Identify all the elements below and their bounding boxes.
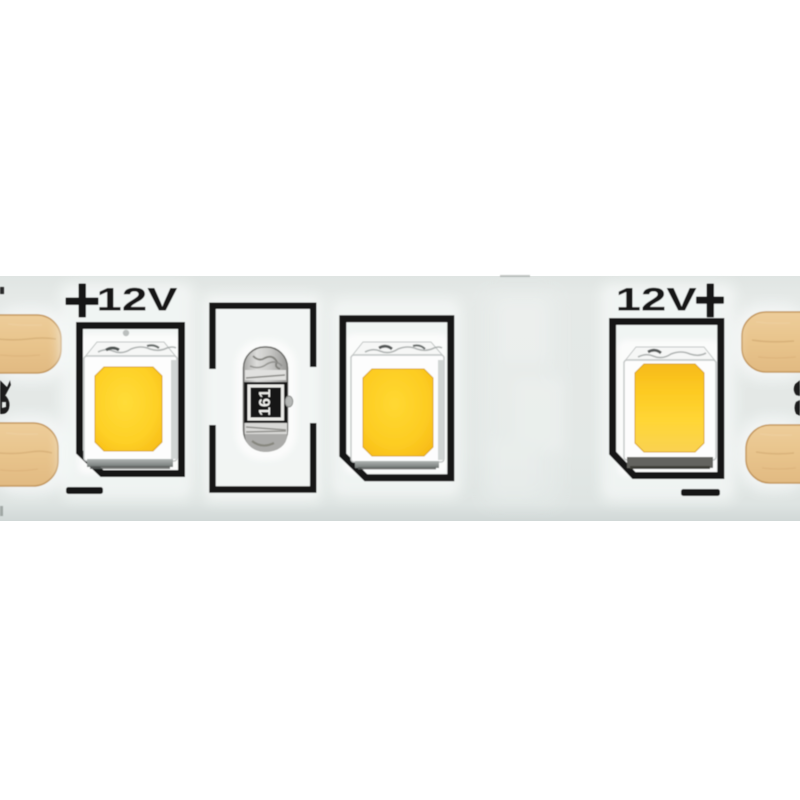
svg-text:12V: 12V [97,282,179,318]
svg-text:12V: 12V [616,282,698,318]
svg-text:161: 161 [257,389,274,416]
